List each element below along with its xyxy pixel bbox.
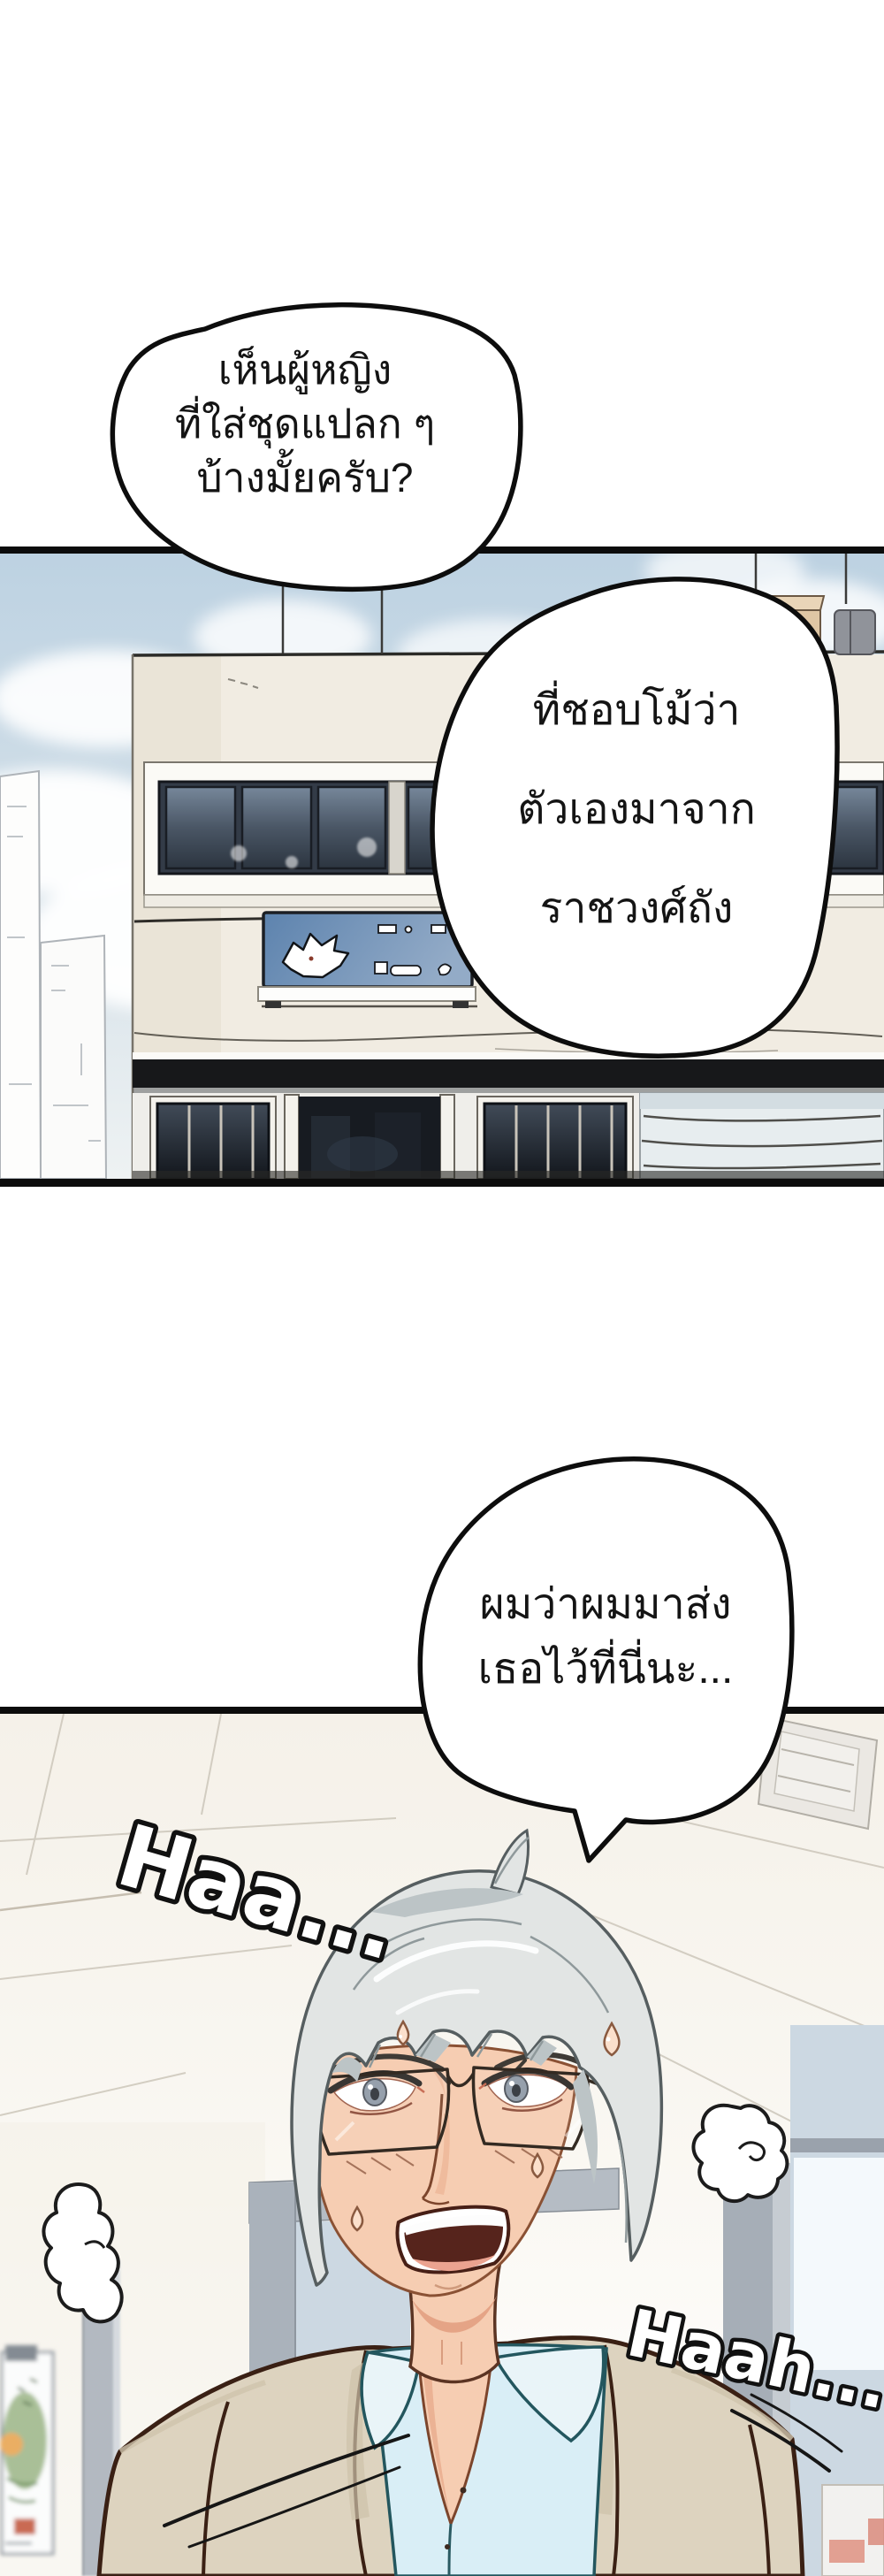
dialogue-line: ตัวเองมาจาก — [488, 761, 785, 860]
dialogue-line: ราชวงศ์ถัง — [488, 860, 785, 959]
mouth — [396, 2205, 511, 2274]
dialogue-line: เห็นผู้หญิง — [102, 343, 508, 397]
comic-page: Haa... Haah... เห็นผู้หญิง ที่ใส่ชุดแปลก… — [0, 0, 884, 2576]
dialogue-line: ผมว่าผมมาส่ง — [449, 1572, 762, 1637]
dialogue-line: เธอไว้ที่นี่นะ... — [449, 1637, 762, 1701]
wall-poster — [0, 2345, 53, 2554]
dialogue-line: ที่ชอบโม้ว่า — [488, 661, 785, 761]
speech-bubble-3-text: ผมว่าผมมาส่ง เธอไว้ที่นี่นะ... — [449, 1572, 762, 1701]
dialogue-line: ที่ใส่ชุดแปลก ๆ — [102, 397, 508, 451]
panel-store-interior: Haa... Haah... — [0, 1707, 884, 2576]
panel1-bottom-border — [0, 1179, 884, 1187]
storefront — [133, 1052, 884, 1179]
store-sign — [258, 913, 477, 1008]
speech-bubble-1-text: เห็นผู้หญิง ที่ใส่ชุดแปลก ๆ บ้างมั้ยครับ… — [102, 343, 508, 505]
dialogue-line: บ้างมั้ยครับ? — [102, 451, 508, 505]
speech-bubble-2-text: ที่ชอบโม้ว่า ตัวเองมาจาก ราชวงศ์ถัง — [488, 661, 785, 959]
